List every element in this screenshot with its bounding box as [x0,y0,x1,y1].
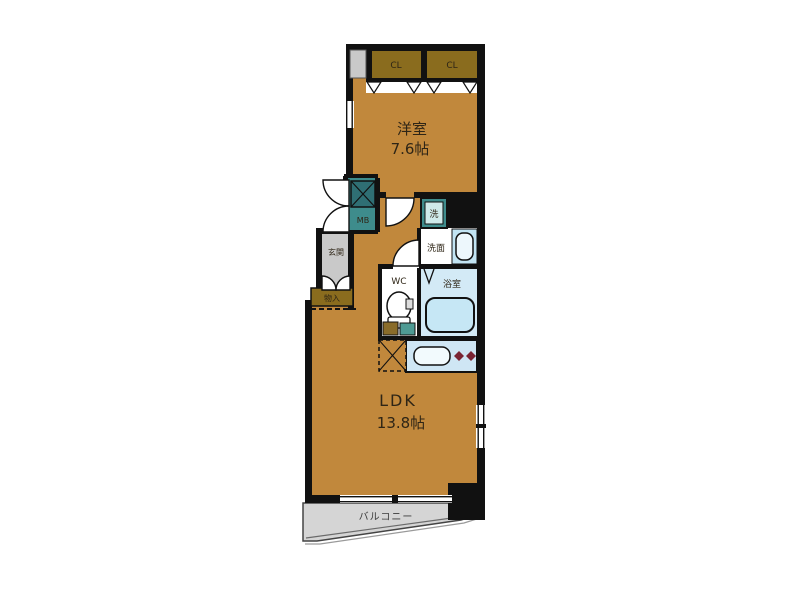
meter-box: MB [348,178,375,230]
window-south-2 [398,495,452,503]
floor-plan: MB 洗 [0,0,800,600]
exterior-alcove [350,50,366,78]
wall-right-upper [477,44,485,405]
sink-basin-icon [456,233,473,260]
western-room-label: 洋室 [397,120,427,138]
closet-door-strip [366,82,477,93]
meter-box-label: MB [357,216,369,225]
window-south2-line2 [398,501,452,502]
wall-block-northeast [446,192,477,228]
cabinet-box [383,322,398,335]
bathtub-icon [426,298,474,332]
meter-box-door-upper-icon [323,180,349,206]
washer-label: 洗 [429,208,438,220]
wall-left-upper-b [346,128,353,178]
pillar-southeast [448,483,485,520]
refrigerator-space [379,340,406,371]
bathroom-label: 浴室 [443,278,461,290]
window-south1-line1 [340,496,392,497]
wall-ldk-bottom-b [392,495,398,503]
wall-wc-left [378,268,382,336]
ldk-size-label: 13.8帖 [377,414,425,432]
closet-right-label: CL [446,61,457,71]
balcony-label: バルコニー [359,511,414,523]
western-room-size-label: 7.6帖 [391,140,430,158]
corridor-floor [352,232,378,342]
wall-sanitary-top-b [419,264,477,269]
wc-label: WC [391,277,406,287]
window-south-1 [340,495,392,503]
utility-box [400,323,415,335]
closet-left-label: CL [390,61,401,71]
washroom-label: 洗面 [427,242,445,254]
entrance-label: 玄関 [328,247,344,257]
wall-wc-bath-divider [417,268,421,336]
window-west-line1 [346,101,347,128]
floor-plan-page: MB 洗 [0,0,800,600]
window-east [476,405,486,448]
kitchen [406,340,477,372]
wall-closet-divider [421,51,427,78]
kitchen-sink-icon [414,347,450,365]
window-west [345,101,354,128]
wall-closet-left [366,44,372,81]
ldk-label: LDK [379,391,417,410]
window-east-mullion [476,424,486,428]
wall-ldk-left [305,300,312,503]
wall-entrance-left [316,232,322,290]
toilet-washlet [406,299,413,309]
washroom-sink [452,229,477,264]
washer-space: 洗 [421,198,447,228]
window-south2-line1 [398,496,452,497]
meter-box-door-lower-icon [323,206,349,232]
window-south1-line2 [340,501,392,502]
wall-ldk-bottom-a [305,495,340,503]
storage-label: 物入 [324,293,340,303]
window-west-line2 [352,101,353,128]
